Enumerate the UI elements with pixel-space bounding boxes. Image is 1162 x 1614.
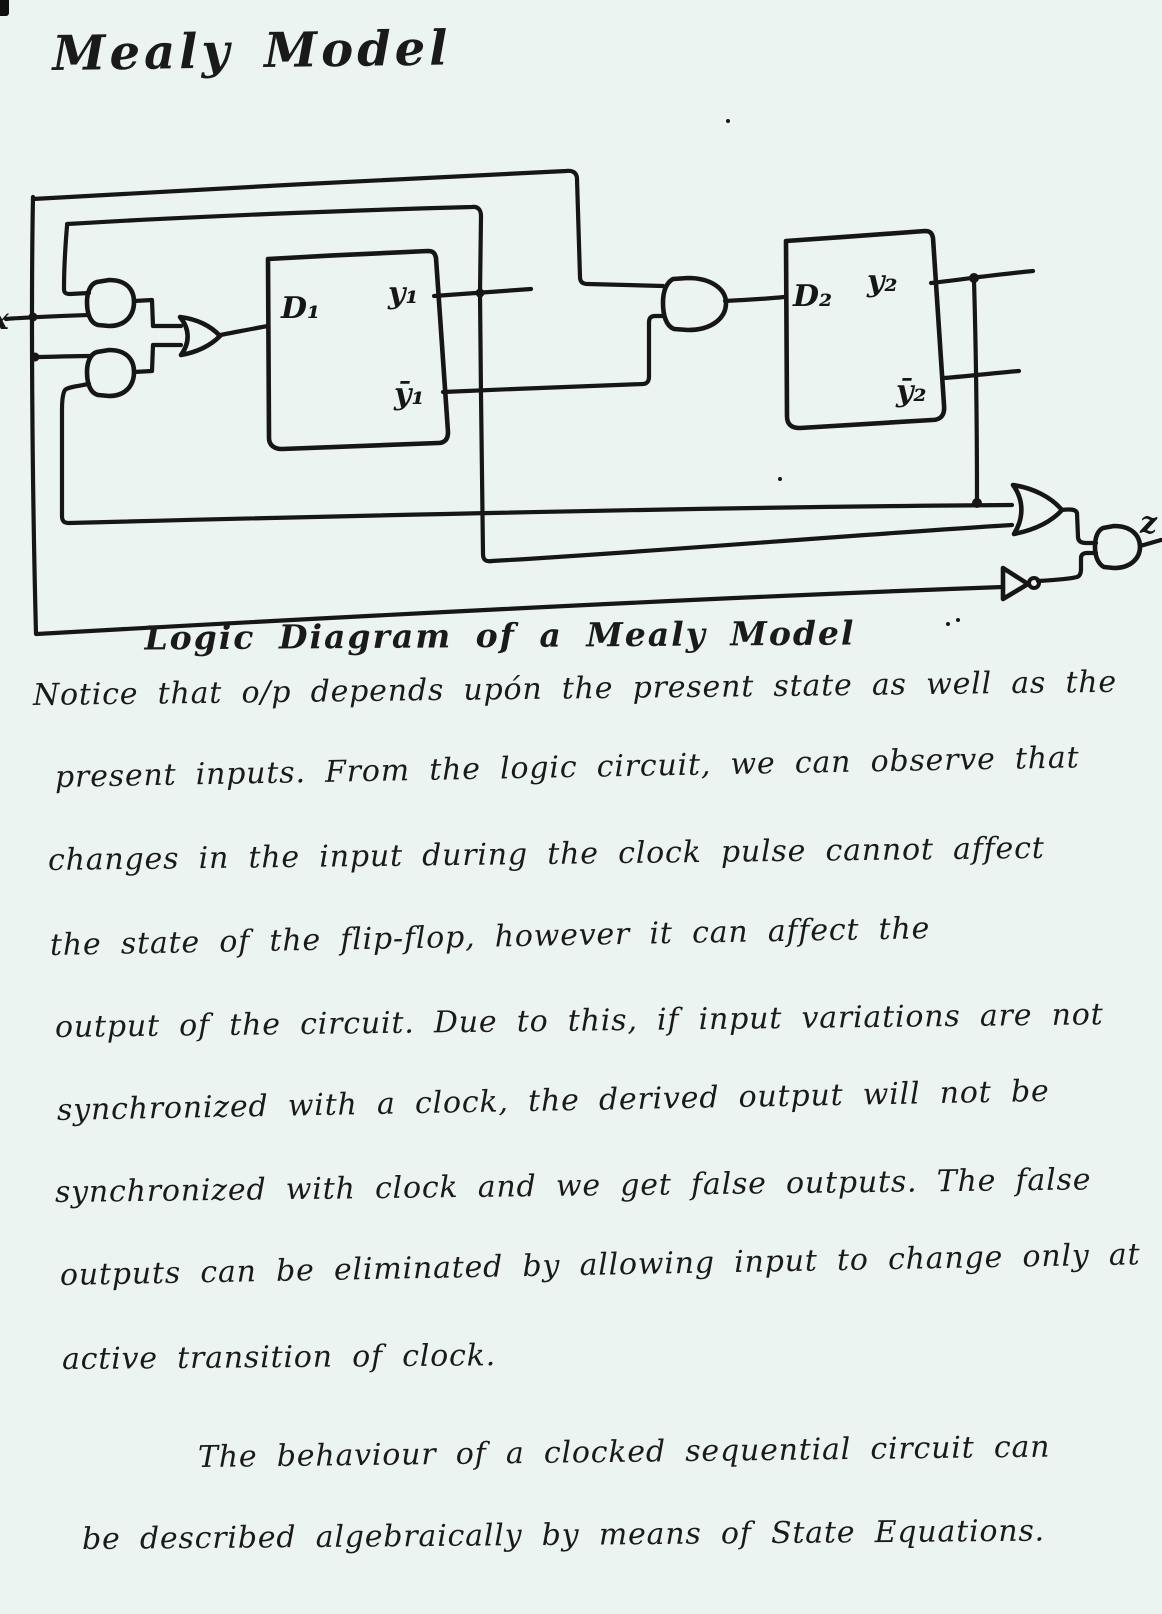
ff1-y-label: y₁ [387,276,419,311]
or-gate-2 [1013,485,1062,534]
input-x-label: x [0,302,10,337]
and-gate-4 [1095,526,1140,568]
not-gate [1003,568,1028,599]
ff2-ybar-label: ȳ₂ [895,374,927,409]
wire-or2-to-and4 [1061,509,1096,543]
ff2-d-label: D₂ [792,279,832,314]
wire-x-left-rail [32,197,36,634]
junction-dot [969,273,979,283]
notes-line: synchronized with a clock, the derived o… [57,1074,1050,1128]
ff2-y-label: y₂ [866,264,898,299]
stray-dot [726,119,730,123]
diagram-caption: Logic Diagram of a Mealy Model [0,613,1000,659]
and-gate-2 [87,350,134,396]
wire-y1bar-to-and3 [443,316,664,392]
and-gate-1 [87,280,134,326]
junction-dot [31,353,40,362]
junction-dot [476,289,485,298]
notebook-page: Mealy Model [0,0,1162,1614]
ff1-ybar-label: ȳ₁ [393,377,425,412]
wire-d2-input [725,297,784,301]
notes-line: changes in the input during the clock pu… [48,831,1045,878]
notes-line: synchronized with clock and we get false… [55,1162,1092,1210]
notes-line: output of the circuit. Due to this, if i… [55,997,1104,1045]
flipflop1-box [268,251,448,449]
wire-y2-drop [974,280,977,503]
output-z-label: z [1139,506,1158,541]
wire-y2-output [931,271,1033,283]
wire-x-top-line [33,171,663,286]
notes-line: present inputs. From the logic circuit, … [55,740,1080,795]
notes-line: outputs can be eliminated by allowing in… [60,1237,1141,1293]
and-gate-3 [663,278,726,330]
notes-line: The behaviour of a clocked sequential ci… [198,1430,1051,1475]
wire-and2-to-or1 [134,345,181,372]
stray-dot [778,477,782,481]
notes-line: the state of the flip-flop, however it c… [50,911,931,963]
notes-line: active transition of clock. [62,1338,496,1377]
ff1-d-label: D₁ [280,291,320,326]
or-gate-1 [180,317,220,355]
mealy-logic-diagram: x D₁ y₁ ȳ₁ D₂ y₂ ȳ₂ z [0,0,1162,668]
wire-x-to-and2 [35,356,89,357]
wire-y2-feedback-rail [62,384,1012,523]
junction-dot [29,313,38,322]
not-gate-bubble [1029,578,1039,588]
wire-input-x [6,315,89,319]
wire-y2bar-output [944,371,1019,378]
wire-not-to-and4 [1038,553,1096,581]
notes-line: Notice that o/p depends upón the present… [33,665,1117,713]
notes-line: be described algebraically by means of S… [82,1514,1045,1557]
wire-or1-to-d1 [220,326,268,335]
junction-dot [972,498,982,508]
wire-and1-to-or1 [134,300,181,326]
wire-y1-to-and1 [64,226,89,294]
